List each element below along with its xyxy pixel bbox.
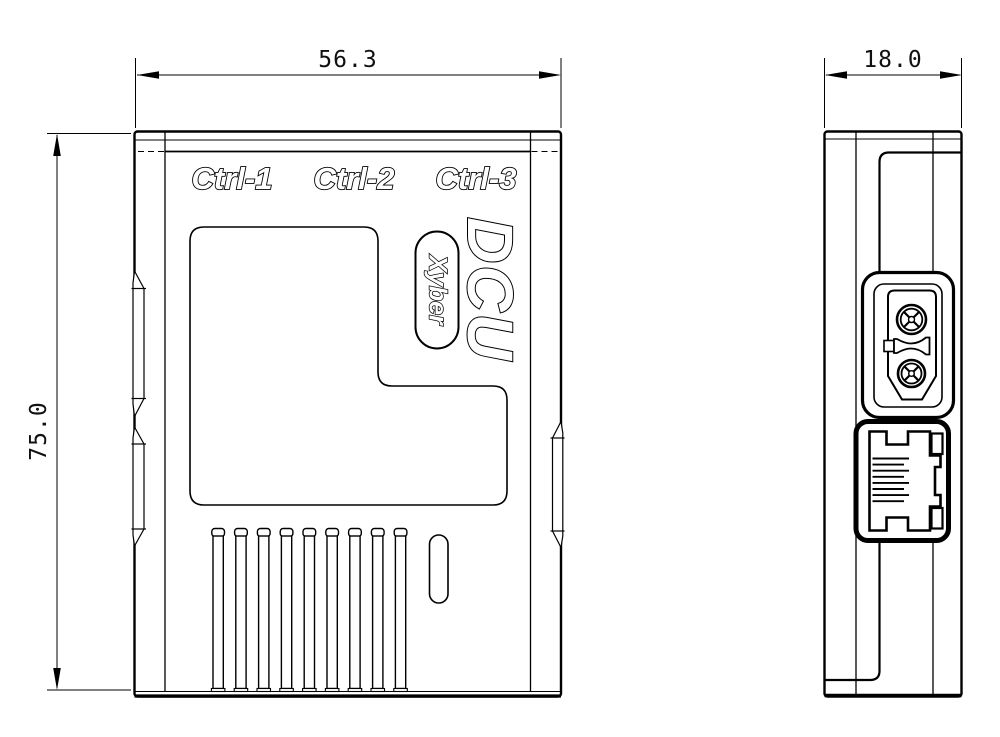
vent-slot [373, 536, 383, 689]
vent-cap [371, 529, 384, 537]
port-label-ctrl-1: Ctrl-1 [192, 161, 273, 196]
vent-foot [257, 689, 271, 692]
vent-slot [350, 536, 360, 689]
power-terminal-negative [898, 360, 925, 387]
vent-slots [211, 529, 407, 692]
vent-foot [371, 689, 385, 692]
front-height-value: 75.0 [26, 401, 52, 460]
arrowhead-up-icon [53, 134, 61, 156]
vent-foot [234, 689, 248, 692]
dimension-front-height [47, 134, 131, 691]
vent-foot [325, 689, 339, 692]
port-label-ctrl-3: Ctrl-3 [436, 161, 517, 196]
vent-slot [236, 536, 246, 689]
vent-cap [235, 529, 248, 537]
mounting-clip-left-upper [132, 271, 147, 417]
vent-slot [213, 536, 223, 689]
arrowhead-left-icon [137, 71, 159, 79]
rj45-ethernet-port [856, 422, 949, 541]
vent-cap [303, 529, 316, 537]
shield-tab-upper [932, 434, 943, 455]
front-view: Ctrl-1 Ctrl-2 Ctrl-3 Xyber DCU [132, 132, 565, 697]
keying-notch [884, 341, 894, 352]
vent-foot [211, 689, 225, 692]
vent-slot [395, 536, 405, 689]
arrowhead-right-icon [539, 71, 561, 79]
vent-slot [304, 536, 314, 689]
port-label-ctrl-2: Ctrl-2 [314, 161, 395, 196]
vent-slot [281, 536, 291, 689]
product-name: DCU [454, 217, 526, 362]
vent-slot [259, 536, 269, 689]
mounting-clip-right [551, 422, 565, 548]
vent-foot [348, 689, 362, 692]
front-width-value: 56.3 [318, 47, 377, 73]
arrowhead-right-icon [940, 71, 962, 79]
xt30-power-connector [863, 273, 954, 418]
mounting-clip-left-lower [132, 427, 147, 546]
jack-opening-outline [870, 432, 941, 531]
vent-foot [280, 689, 294, 692]
vent-cap [349, 529, 362, 537]
vent-cap [394, 529, 407, 537]
arrowhead-down-icon [53, 668, 61, 690]
side-depth-value: 18.0 [863, 47, 922, 73]
side-view [825, 132, 962, 697]
shield-tab-lower [932, 508, 943, 529]
vent-foot [303, 689, 317, 692]
engineering-drawing-canvas: 56.3 75.0 18.0 Ctrl-1 Ctrl-2 Ctrl-3 [0, 0, 1000, 737]
brand-name: Xyber [424, 253, 452, 326]
led-slot [430, 535, 449, 603]
vent-cap [326, 529, 339, 537]
vent-foot [394, 689, 408, 692]
arrowhead-left-icon [825, 71, 847, 79]
vent-cap [280, 529, 293, 537]
vent-cap [212, 529, 225, 537]
vent-slot [327, 536, 337, 689]
vent-cap [257, 529, 270, 537]
power-terminal-positive [897, 305, 926, 334]
